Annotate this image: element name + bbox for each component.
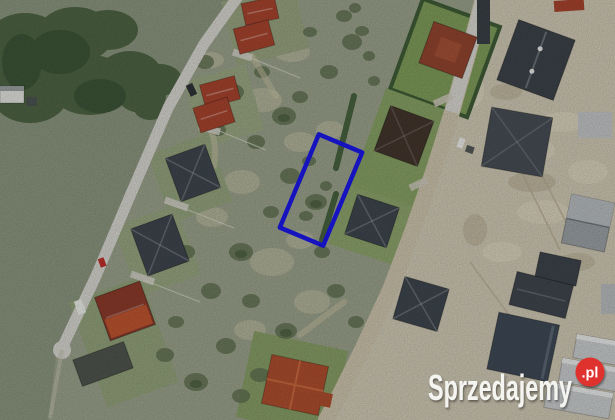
watermark-brand-text: Sprzedajemy [428, 367, 572, 408]
grain-overlay [0, 0, 615, 420]
watermark-tld-text: .pl [582, 366, 599, 382]
aerial-photo: Sprzedajemy .pl [0, 0, 615, 420]
aerial-photo-canvas: Sprzedajemy .pl [0, 0, 615, 420]
